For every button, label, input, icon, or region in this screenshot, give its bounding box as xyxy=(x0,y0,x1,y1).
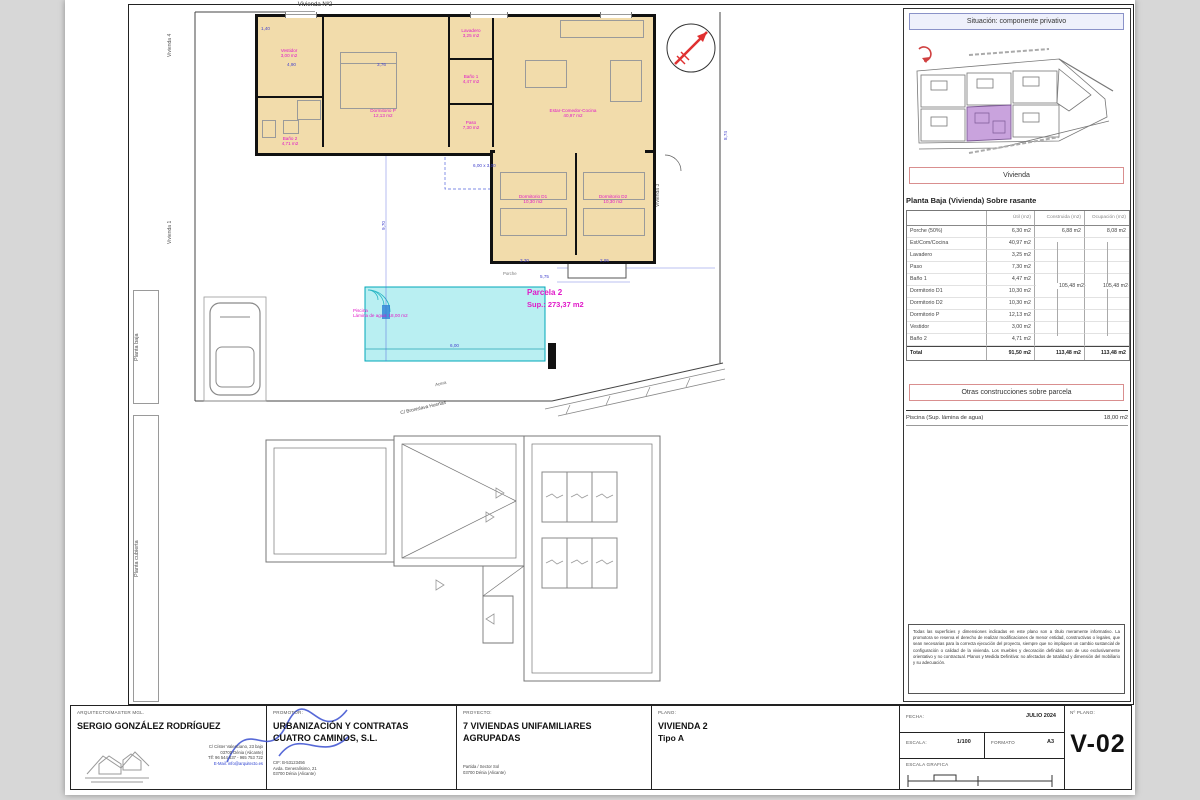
escala-grafica-row: ESCALA GRAFICA xyxy=(899,758,1064,789)
kitchen-counter xyxy=(560,20,644,38)
total-util: 91,50 m2 xyxy=(987,346,1035,360)
escala-grafica-label: ESCALA GRAFICA xyxy=(906,762,948,767)
table-row-util: 4,47 m2 xyxy=(987,274,1035,286)
otras-rule xyxy=(906,410,1128,411)
situacion-map xyxy=(909,33,1122,161)
dim-label: 4,90 xyxy=(287,62,296,67)
promoter-name-2: CUATRO CAMINOS, S.L. xyxy=(273,733,377,743)
col-header-ocupacion: Ocupación (m2) xyxy=(1085,211,1129,226)
dim-label: 3,30 xyxy=(520,258,529,263)
fecha-row: FECHA: JULIO 2024 xyxy=(899,706,1064,733)
parcel-area: Sup.: 273,37 m2 xyxy=(527,300,584,309)
table-row-name: Vestidor xyxy=(907,322,987,334)
dim-label: 3,76 xyxy=(377,62,386,67)
otras-header: Otras construcciones sobre parcela xyxy=(909,384,1124,401)
room-area: 7,30 m2 xyxy=(453,125,489,130)
margin-box-planta-baja: Planta baja xyxy=(133,290,159,404)
escala-formato-row: ESCALA: 1/100 FORMATO A3 xyxy=(899,732,1064,759)
planta-cubierta-label: Planta cubierta xyxy=(134,416,158,701)
window xyxy=(600,12,632,18)
architect-address: C/ Císter Valenciano, 23 bajo 03700 Déni… xyxy=(159,744,263,767)
architectural-sheet-page: { "plan": { "top_label": "Vivienda Nº2",… xyxy=(0,0,1200,800)
window xyxy=(285,12,317,18)
dim-label: 2,95 xyxy=(600,258,609,263)
roof-plan xyxy=(250,428,670,693)
room-label-d1: Dormitorio D1 10,30 m2 xyxy=(497,194,569,205)
table-row-name: Baño 2 xyxy=(907,334,987,346)
escala-value: 1/100 xyxy=(957,739,971,745)
surface-table-subtitle: Planta Baja (Vivienda) Sobre rasante xyxy=(906,196,1036,205)
table-row-util: 10,30 m2 xyxy=(987,286,1035,298)
window xyxy=(470,12,508,18)
project-name-1: 7 VIVIENDAS UNIFAMILIARES xyxy=(463,721,592,731)
total-ocupada: 113,48 m2 xyxy=(1085,346,1129,360)
piscina-value: 18,00 m2 xyxy=(1104,415,1128,421)
neighbour-left-top-label: Vivienda 4 xyxy=(167,18,173,73)
porch-label: Porche xyxy=(503,271,517,276)
merge-bracket xyxy=(1107,242,1108,336)
dim-label: 1,40 xyxy=(261,26,270,31)
divider xyxy=(456,706,457,789)
divider xyxy=(984,732,985,758)
table-row-util: 12,13 m2 xyxy=(987,310,1035,322)
fecha-value: JULIO 2024 xyxy=(1026,713,1056,719)
room-area: 12,13 m2 xyxy=(353,113,413,118)
title-block: ARQUITECTO/MASTER MGL. SERGIO GONZÁLEZ R… xyxy=(70,705,1132,790)
table-row-util: 4,71 m2 xyxy=(987,334,1035,346)
plano-name: VIVIENDA 2 xyxy=(658,721,708,731)
partition xyxy=(322,17,324,147)
disclaimer-text: Todas las superficies y dimensiones indi… xyxy=(913,629,1120,666)
promoter-name-1: URBANIZACIÓN Y CONTRATAS xyxy=(273,721,408,731)
merge-bracket xyxy=(1057,242,1058,336)
formato-value: A3 xyxy=(1047,739,1054,745)
nplano-value: V-02 xyxy=(1064,730,1132,759)
fecha-label: FECHA: xyxy=(906,714,924,719)
room-label-bano1: Baño 1 4,47 m2 xyxy=(453,74,489,85)
north-arrow-icon xyxy=(663,20,719,76)
room-label-vestidor: Vestidor 3,00 m2 xyxy=(262,48,316,59)
room-label-paso: Paso 7,30 m2 xyxy=(453,120,489,131)
partition xyxy=(450,103,492,105)
graphic-scale-bar xyxy=(904,771,1059,787)
room-area: 4,71 m2 xyxy=(265,141,315,146)
table-row-name: Dormitorio D2 xyxy=(907,298,987,310)
situacion-header: Situación: componente privativo xyxy=(909,13,1124,30)
dim-label: 6,00 x 3,00 xyxy=(473,163,496,168)
plano-tipo: Tipo A xyxy=(658,733,684,743)
shower xyxy=(297,100,321,120)
piscina-item: Piscina (Sup. lámina de agua) xyxy=(906,415,983,421)
table-row-name: Lavadero xyxy=(907,250,987,262)
total-construida: 113,48 m2 xyxy=(1035,346,1085,360)
wardrobe-d2 xyxy=(583,208,645,236)
table-row-util: 6,30 m2 xyxy=(987,226,1035,238)
margin-box-planta-cubierta: Planta cubierta xyxy=(133,415,159,702)
project-address: Partida / Sector Sol 03700 Dénia (Alican… xyxy=(463,764,506,775)
architect-label: ARQUITECTO/MASTER MGL. xyxy=(77,710,144,715)
disclaimer-box: Todas las superficies y dimensiones indi… xyxy=(908,624,1125,694)
partition xyxy=(492,17,494,147)
dim-label: 9,70 xyxy=(381,221,386,230)
table-row-name: Dormitorio P xyxy=(907,310,987,322)
room-area: 40,97 m2 xyxy=(533,113,613,118)
col-header xyxy=(907,211,987,226)
partition xyxy=(448,17,450,147)
formato-label: FORMATO xyxy=(991,740,1015,745)
merged-construida-value: 105,48 m2 xyxy=(1036,283,1084,289)
piscina-row: Piscina (Sup. lámina de agua) 18,00 m2 xyxy=(906,415,1128,426)
project-label: PROYECTO: xyxy=(463,710,492,715)
table-row-name: Dormitorio D1 xyxy=(907,286,987,298)
bed-pillow xyxy=(340,52,397,64)
promoter-address: CIF: B-53123456 Avda. Generalísimo, 21 0… xyxy=(273,760,317,777)
plano-label: PLANO: xyxy=(658,710,676,715)
room-area: 10,30 m2 xyxy=(579,199,647,204)
house-bedroom-wing xyxy=(490,150,656,264)
table-row-util: 10,30 m2 xyxy=(987,298,1035,310)
table-row-util: 40,97 m2 xyxy=(987,238,1035,250)
room-area: 10,30 m2 xyxy=(497,199,569,204)
merged-ocupada-value: 105,48 m2 xyxy=(1086,283,1128,289)
room-label-d2: Dormitorio D2 10,30 m2 xyxy=(579,194,647,205)
pool-area: Lámina de agua: 18,00 m2 xyxy=(353,313,408,318)
table-row-ocup: 8,08 m2 xyxy=(1085,226,1129,238)
room-label-bano2: Baño 2 4,71 m2 xyxy=(265,136,315,147)
room-area: 3,00 m2 xyxy=(262,53,316,58)
planta-baja-label: Planta baja xyxy=(134,291,158,403)
room-label-dormP: Dormitorio P 12,13 m2 xyxy=(353,108,413,119)
dim-label: 6,00 xyxy=(450,343,459,348)
pool-label: Piscina Lámina de agua: 18,00 m2 xyxy=(353,308,408,319)
paper-sheet: Planta baja Planta cubierta Vivienda Nº2… xyxy=(65,0,1135,795)
divider xyxy=(651,706,652,789)
dim-label: 5,75 xyxy=(540,274,549,279)
room-label-estar: Estar-Comedor-Cocina 40,97 m2 xyxy=(533,108,613,119)
table-row-util: 3,00 m2 xyxy=(987,322,1035,334)
room-label-lavadero: Lavadero 3,25 m2 xyxy=(453,28,489,39)
project-name-2: AGRUPADAS xyxy=(463,733,520,743)
partition xyxy=(450,58,492,60)
house-wall-seam xyxy=(495,146,645,154)
col-header-util: Útil (m2) xyxy=(987,211,1035,226)
room-area: 3,25 m2 xyxy=(453,33,489,38)
table-row-constr: 6,88 m2 xyxy=(1035,226,1085,238)
table-row-name: Est/Com/Cocina xyxy=(907,238,987,250)
neighbour-left-bottom-label: Vivienda 1 xyxy=(167,205,173,260)
total-label: Total xyxy=(907,346,987,360)
nplano-label: Nº PLANO: xyxy=(1070,710,1095,715)
col-header-construida: Construida (m2) xyxy=(1035,211,1085,226)
dim-label: 8,74 xyxy=(723,131,728,140)
vivienda-header: Vivienda xyxy=(909,167,1124,184)
sofa xyxy=(525,60,567,88)
dining-table xyxy=(610,60,642,102)
escala-label: ESCALA: xyxy=(906,740,927,745)
room-area: 4,47 m2 xyxy=(453,79,489,84)
partition xyxy=(258,96,322,98)
architect-stamp-icon xyxy=(77,738,157,786)
table-row-util: 3,25 m2 xyxy=(987,250,1035,262)
sink xyxy=(283,120,299,134)
table-row-name: Porche (50%) xyxy=(907,226,987,238)
partition xyxy=(575,153,577,255)
promoter-label: PROMOTOR: xyxy=(273,710,303,715)
table-row-util: 7,30 m2 xyxy=(987,262,1035,274)
wardrobe-d1 xyxy=(500,208,567,236)
table-row-name: Paso xyxy=(907,262,987,274)
table-row-name: Baño 1 xyxy=(907,274,987,286)
parcel-title: Parcela 2 xyxy=(527,288,562,297)
